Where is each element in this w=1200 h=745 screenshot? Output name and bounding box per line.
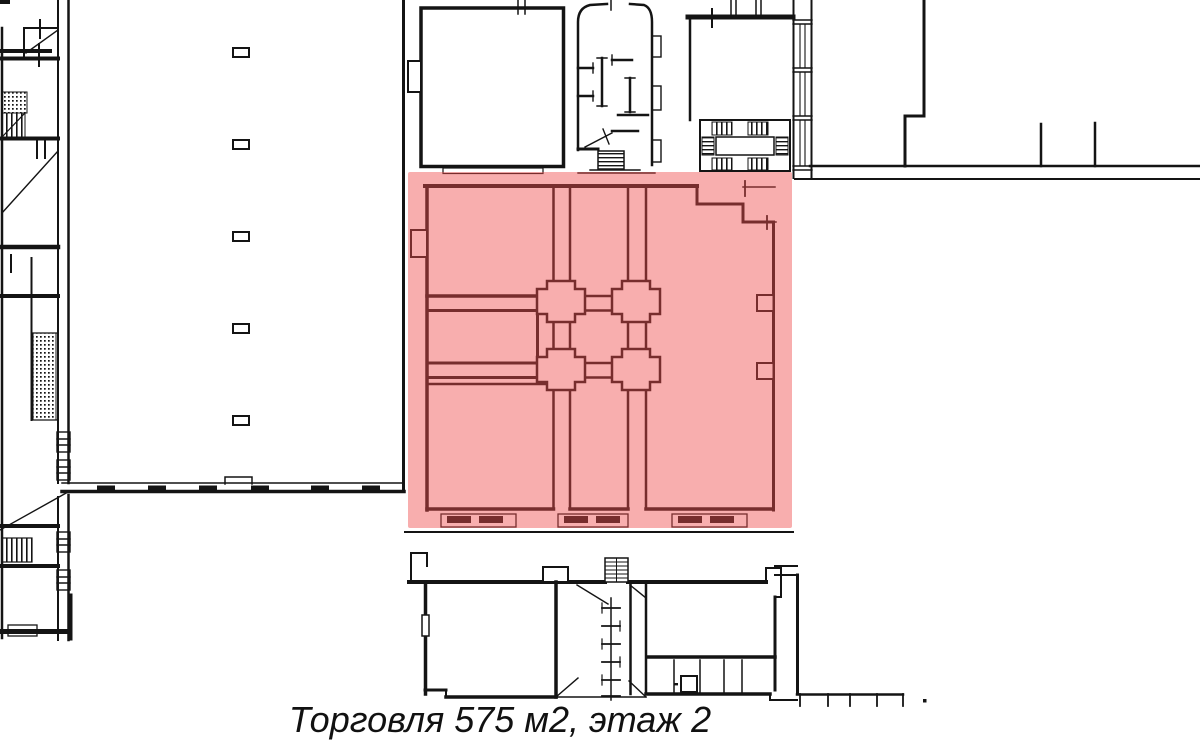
stairs-icon xyxy=(598,151,624,169)
right-wing xyxy=(795,0,1200,179)
ladder-icon xyxy=(602,598,620,700)
escalator-icon xyxy=(700,120,790,171)
floorplan-page: Торговля 575 м2, этаж 2 xyxy=(0,0,1200,745)
floor-plan-svg xyxy=(0,0,1200,745)
caption-label: Торговля 575 м2, этаж 2 xyxy=(230,699,770,741)
door-ticks xyxy=(756,0,761,16)
top-right-block xyxy=(688,0,793,171)
stairs-icon xyxy=(605,558,628,582)
door-ticks xyxy=(731,0,736,16)
shaft-hatch xyxy=(33,333,56,420)
diagonal-mark xyxy=(2,151,58,213)
door-ticks xyxy=(37,141,45,158)
door-swing xyxy=(577,585,608,604)
top-center-room xyxy=(408,0,564,174)
door-swing xyxy=(630,585,646,598)
stair-core xyxy=(578,0,661,173)
hall-columns xyxy=(233,48,249,425)
wall-stub xyxy=(0,0,10,4)
bottom-block xyxy=(409,553,927,706)
facade-window-strip xyxy=(793,0,812,178)
left-wing xyxy=(0,0,71,640)
window-band xyxy=(62,477,404,492)
main-hall xyxy=(62,0,404,492)
wc-partitions xyxy=(578,55,648,147)
shaft-hatch xyxy=(2,92,27,113)
highlight-region[interactable] xyxy=(408,172,792,528)
door-swing xyxy=(556,678,578,697)
stairs-icon xyxy=(2,538,32,562)
